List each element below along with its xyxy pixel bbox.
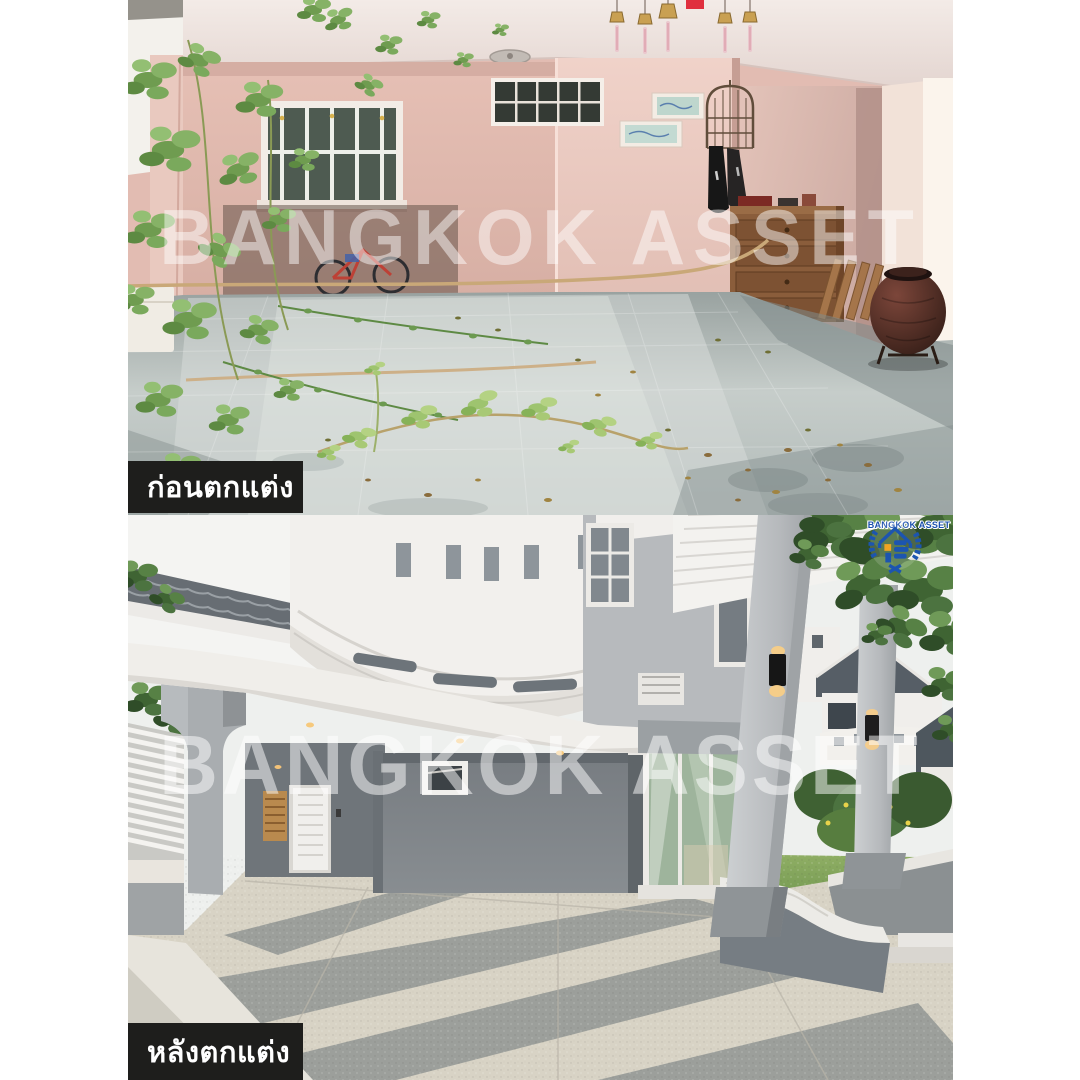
- ceiling-lamp: [490, 50, 530, 64]
- after-scene-illustration: [128, 515, 953, 1080]
- before-photo: BANGKOK ASSET ก่อนตกแต่ง: [128, 0, 953, 515]
- glass-block-vent: [491, 78, 604, 126]
- interior-door: [289, 785, 331, 873]
- interior-wall-block: [383, 753, 628, 893]
- before-scene-illustration: [128, 0, 953, 515]
- after-label: หลังตกแต่ง: [128, 1023, 303, 1080]
- wall-sconce-far: [865, 709, 879, 750]
- bangkok-asset-emblem: [866, 519, 924, 575]
- vent-window: [422, 761, 468, 795]
- bangkok-asset-logo: BANGKOK ASSET: [866, 519, 952, 530]
- poster-canvas: BANGKOK ASSET ก่อนตกแต่ง: [0, 0, 1080, 1080]
- barred-window: [257, 101, 407, 212]
- before-label: ก่อนตกแต่ง: [128, 461, 303, 513]
- after-photo: BANGKOK ASSET BANGKOK ASSET หลังตกแต่ง: [128, 515, 953, 1080]
- grid-window: [586, 523, 634, 607]
